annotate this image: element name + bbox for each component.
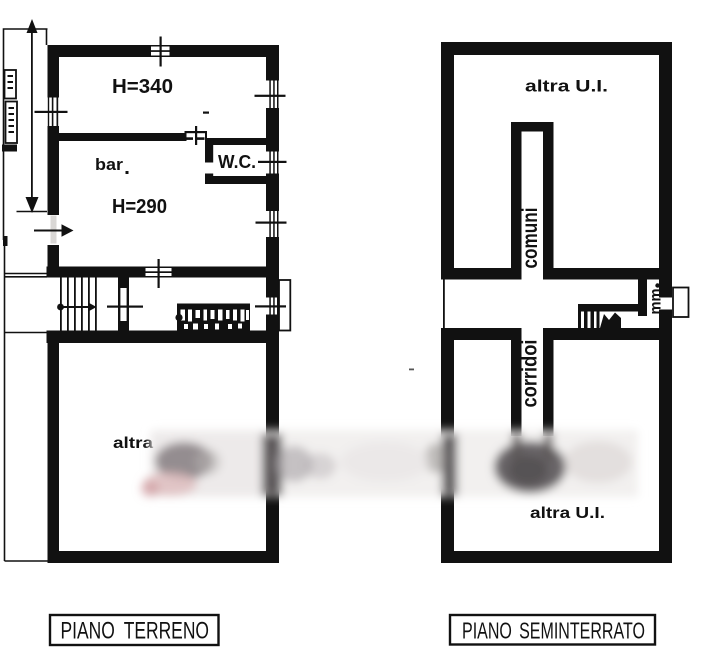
svg-text:W.C.: W.C. (218, 152, 256, 172)
svg-text:PIANO TERRENO: PIANO TERRENO (61, 618, 210, 645)
svg-text:altra: altra (113, 435, 153, 452)
svg-text:corridoi: corridoi (519, 340, 542, 408)
svg-text:bar: bar (95, 155, 123, 174)
svg-text:mm.: mm. (648, 285, 665, 315)
svg-text:altra U.I.: altra U.I. (530, 505, 605, 522)
svg-text:PIANO SEMINTERRATO: PIANO SEMINTERRATO (462, 618, 645, 644)
svg-text:H=290: H=290 (112, 196, 167, 218)
svg-text:H=340: H=340 (112, 76, 173, 98)
svg-text:comuni: comuni (519, 208, 542, 269)
svg-text:altra U.I.: altra U.I. (525, 78, 608, 96)
